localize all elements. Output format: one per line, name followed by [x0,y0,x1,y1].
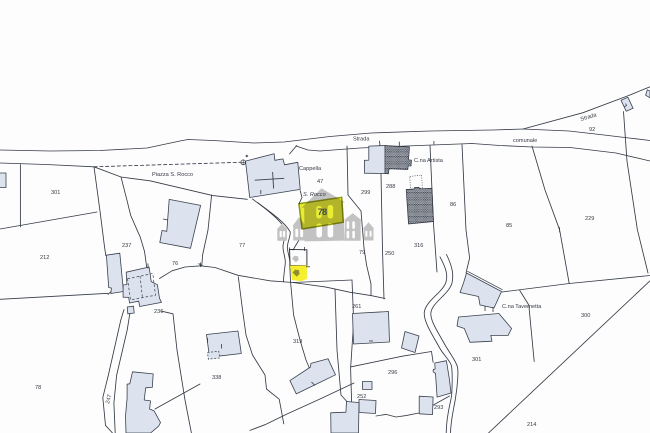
svg-text:Strada: Strada [353,137,370,143]
svg-text:Piazza S. Rocco: Piazza S. Rocco [152,172,193,178]
svg-text:296: 296 [388,370,397,376]
svg-text:79: 79 [359,250,365,256]
svg-text:252: 252 [357,394,366,400]
svg-text:214: 214 [527,422,536,428]
svg-text:Cappella: Cappella [299,166,322,172]
svg-text:77: 77 [239,243,245,249]
svg-text:78: 78 [35,385,41,391]
svg-text:300: 300 [581,313,590,319]
svg-text:92: 92 [589,127,595,133]
svg-text:comunale: comunale [513,138,537,144]
svg-text:301: 301 [472,357,481,363]
svg-text:C.na Artista: C.na Artista [414,158,444,164]
svg-text:78: 78 [318,207,327,218]
svg-text:229: 229 [585,216,594,222]
svg-text:236: 236 [154,309,163,315]
svg-text:319: 319 [293,339,302,345]
svg-text:86: 86 [450,202,456,208]
svg-text:S. Rocco: S. Rocco [303,192,326,198]
svg-text:301: 301 [51,190,60,196]
svg-text:237: 237 [122,243,131,249]
svg-text:C.na Tavernetta: C.na Tavernetta [502,304,542,310]
svg-text:85: 85 [506,223,512,229]
svg-text:288: 288 [386,184,395,190]
svg-text:250: 250 [385,251,394,257]
svg-text:212: 212 [40,255,49,261]
svg-text:293: 293 [434,405,443,411]
svg-text:47: 47 [317,179,323,185]
svg-text:338: 338 [212,375,221,381]
svg-text:261: 261 [352,304,361,310]
svg-text:316: 316 [414,243,423,249]
svg-text:76: 76 [172,261,178,267]
svg-text:299: 299 [361,190,370,196]
